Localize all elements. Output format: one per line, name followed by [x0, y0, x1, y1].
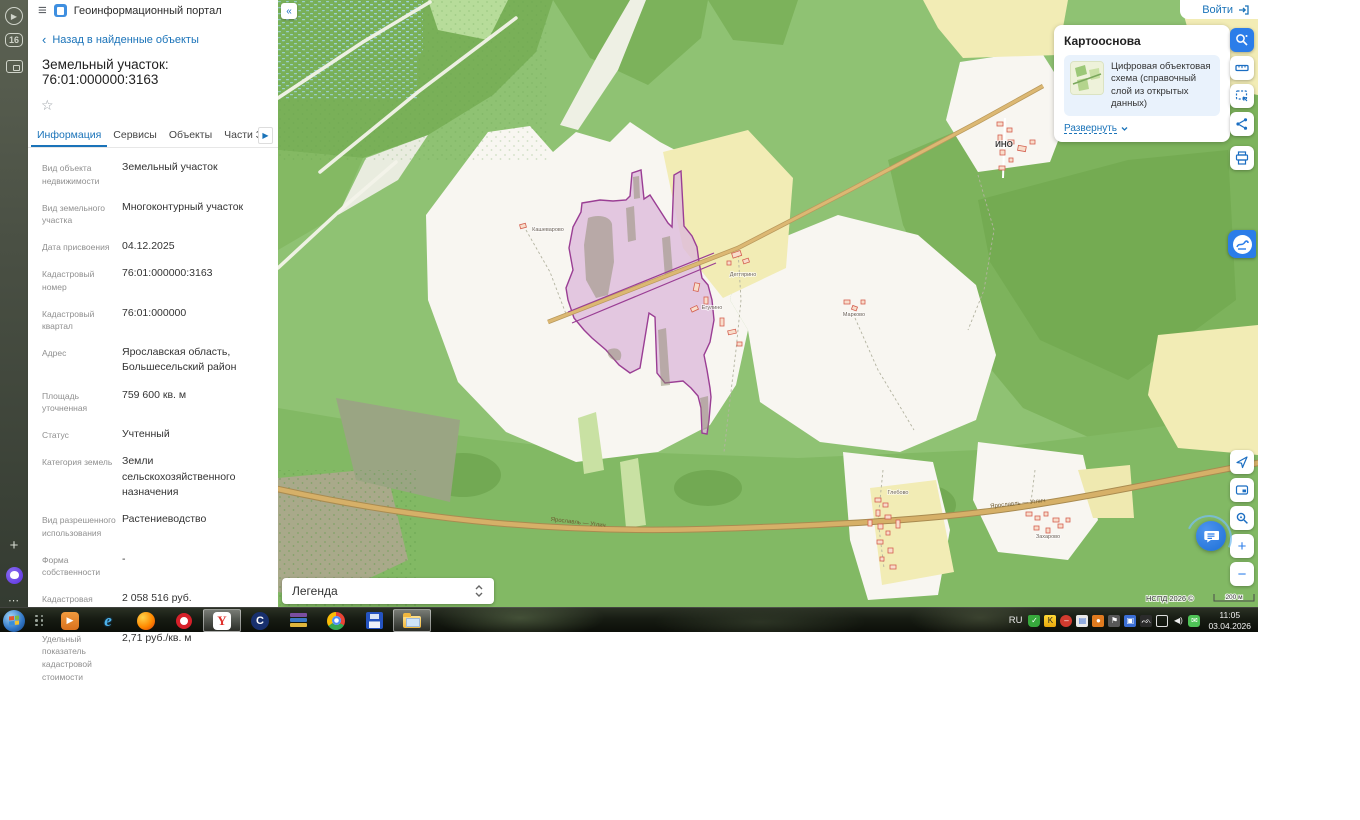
taskbar-clock[interactable]: 11:05 03.04.2026	[1208, 610, 1254, 631]
map-scale-label: 200 м	[1225, 594, 1243, 601]
video-play-icon[interactable]: ▶	[0, 4, 28, 28]
taskbar-item-media-player[interactable]: ▶	[51, 609, 89, 632]
start-button[interactable]	[3, 610, 25, 632]
chat-icon	[1203, 528, 1219, 544]
media-player-icon: ▶	[61, 612, 79, 630]
expand-collapse-icon	[474, 584, 484, 598]
system-tray: RU ✓ K – ▤ ● ⚑ ▣ ᨒ ◀) ✉ 11:05 03.04.2026	[1009, 608, 1258, 633]
yandex-browser-icon: Y	[213, 612, 231, 630]
language-indicator[interactable]: RU	[1009, 615, 1023, 626]
alice-assistant-icon[interactable]	[0, 563, 28, 587]
updates-icon[interactable]: ▤	[1076, 615, 1088, 627]
basemap-layer-row[interactable]: Цифровая объектовая схема (справочный сл…	[1064, 55, 1220, 116]
folder-icon	[403, 616, 421, 628]
clock-date: 03.04.2026	[1208, 621, 1251, 632]
info-row: Дата присвоения04.12.2025	[28, 233, 278, 260]
share-button[interactable]	[1230, 112, 1254, 136]
map-attribution: НСПД 2026 ©	[1146, 594, 1194, 603]
taskbar-item-file-explorer[interactable]	[393, 609, 431, 632]
windows-logo-icon	[9, 615, 19, 625]
info-row: Площадь уточненная759 600 кв. м	[28, 382, 278, 422]
favorite-star-icon[interactable]: ☆	[28, 89, 278, 116]
add-icon[interactable]: +	[0, 533, 28, 557]
firefox-icon	[137, 612, 155, 630]
tabs-bar: Информация Сервисы Объекты Части ЗУ Сост…	[28, 122, 278, 148]
blocked-status-icon[interactable]: –	[1060, 615, 1072, 627]
kaspersky-icon[interactable]: K	[1044, 615, 1056, 627]
object-info-panel: ≡ Геоинформационный портал ‹ Назад в най…	[28, 0, 278, 607]
village-label: Глебово	[887, 490, 908, 496]
login-bar[interactable]: Войти	[1180, 0, 1258, 19]
print-button[interactable]	[1230, 146, 1254, 170]
volume-icon[interactable]: ◀)	[1172, 615, 1184, 627]
login-icon	[1238, 4, 1250, 16]
basemap-card-title: Картооснова	[1064, 34, 1220, 48]
browser-sidebar: ▶ 16 + ⋯	[0, 0, 28, 607]
taskbar-item-sputnik[interactable]: C	[241, 609, 279, 632]
login-label: Войти	[1202, 4, 1233, 16]
taskbar-item-firefox[interactable]	[127, 609, 165, 632]
tab-count-badge[interactable]: 16	[0, 28, 28, 52]
screen: ▶ 16 + ⋯ ≡ Геоинформационный портал ‹ На…	[0, 0, 1360, 820]
village-label: Дегтярино	[730, 272, 757, 278]
winrar-icon	[290, 613, 307, 629]
taskbar-apps: ▶ e Y C	[0, 608, 431, 633]
taskbar-item-winrar[interactable]	[279, 609, 317, 632]
screen-capture-icon[interactable]	[0, 54, 28, 78]
info-row: Кадастровый квартал76:01:000000	[28, 300, 278, 340]
ruler-button[interactable]	[1230, 56, 1254, 80]
taskbar-item-chrome[interactable]	[317, 609, 355, 632]
village-label: Захарово	[1036, 534, 1060, 540]
menu-icon[interactable]: ≡	[38, 3, 47, 18]
info-row: Форма собственности-	[28, 546, 278, 586]
info-row: Категория земельЗемли сельскохозяйственн…	[28, 448, 278, 506]
legend-bar[interactable]: Легенда	[282, 578, 494, 604]
basemap-card: Картооснова Цифровая объектовая схема (с…	[1054, 25, 1230, 142]
info-row: Удельный показатель кадастровой стоимост…	[28, 625, 278, 690]
back-link[interactable]: ‹ Назад в найденные объекты	[28, 20, 278, 47]
select-area-button[interactable]	[1230, 84, 1254, 108]
sputnik-browser-icon: C	[251, 612, 269, 630]
village-label: Егулино	[702, 305, 723, 311]
basemap-switcher-button[interactable]	[1228, 230, 1256, 258]
eagle-icon[interactable]: ᨒ	[1140, 615, 1152, 627]
town-label: ИНО	[995, 140, 1013, 149]
page-title: Земельный участок: 76:01:000000:3163	[28, 47, 278, 89]
map-toolbar-bottom: + −	[1230, 450, 1254, 586]
tab-objects[interactable]: Объекты	[163, 122, 218, 147]
info-row: Вид разрешенного использованияРастениево…	[28, 506, 278, 546]
portal-header: ≡ Геоинформационный портал	[28, 0, 278, 20]
taskbar-item-yandex-browser[interactable]: Y	[203, 609, 241, 632]
zoom-out-button[interactable]: −	[1230, 562, 1254, 586]
info-row: СтатусУчтенный	[28, 421, 278, 448]
basemap-layer-description: Цифровая объектовая схема (справочный сл…	[1111, 61, 1214, 110]
collapse-panel-button[interactable]: «	[281, 3, 297, 19]
portal-logo-icon	[54, 4, 67, 17]
messenger-icon[interactable]: ✉	[1188, 615, 1200, 627]
quick-launch-icon[interactable]	[35, 614, 45, 628]
tab-information[interactable]: Информация	[31, 122, 107, 147]
info-row: Кадастровый номер76:01:000000:3163	[28, 260, 278, 300]
taskbar: ▶ e Y C RU ✓ K – ▤ ● ⚑ ▣ ᨒ ◀) ✉	[0, 607, 1258, 632]
back-chevron-icon: ‹	[42, 32, 46, 47]
info-row: АдресЯрославская область, Большесельский…	[28, 339, 278, 381]
village-label: Марково	[843, 312, 865, 318]
clock-time: 11:05	[1208, 610, 1251, 621]
sync-icon[interactable]: ▣	[1124, 615, 1136, 627]
info-row: Вид объекта недвижимостиЗемельный участо…	[28, 154, 278, 194]
floppy-app-icon	[366, 612, 383, 629]
taskbar-item-floppy-app[interactable]	[355, 609, 393, 632]
basemap-expand-link[interactable]: Развернуть	[1064, 123, 1220, 134]
village-label: Кашеварово	[532, 227, 564, 233]
overview-map-button[interactable]	[1230, 478, 1254, 502]
flag-icon[interactable]: ⚑	[1108, 615, 1120, 627]
locate-button[interactable]	[1230, 450, 1254, 474]
chrome-icon	[327, 612, 345, 630]
portal-title: Геоинформационный портал	[74, 5, 222, 17]
legend-label: Легенда	[292, 584, 338, 598]
basemap-switcher-icon	[1233, 235, 1252, 254]
map-toolbar-top	[1230, 28, 1254, 170]
display-icon[interactable]	[1156, 615, 1168, 627]
map-canvas[interactable]: Кашеварово Дегтярино Егулино Марково Гле…	[278, 0, 1258, 607]
tab-services[interactable]: Сервисы	[107, 122, 163, 147]
object-search-button[interactable]	[1230, 28, 1254, 52]
tabs-overflow-button[interactable]: ▶	[258, 127, 273, 144]
search-location-button[interactable]	[1230, 506, 1254, 530]
antivirus-shield-icon[interactable]: ✓	[1028, 615, 1040, 627]
taskbar-item-opera[interactable]	[165, 609, 203, 632]
taskbar-item-internet-explorer[interactable]: e	[89, 609, 127, 632]
zoom-in-button[interactable]: +	[1230, 534, 1254, 558]
opera-icon	[176, 613, 192, 629]
info-row: Вид земельного участкаМногоконтурный уча…	[28, 194, 278, 234]
internet-explorer-icon: e	[104, 611, 112, 631]
chevron-down-icon	[1120, 124, 1129, 133]
archive-icon[interactable]: ●	[1092, 615, 1104, 627]
chat-button[interactable]	[1196, 521, 1226, 551]
basemap-thumbnail	[1070, 61, 1104, 95]
